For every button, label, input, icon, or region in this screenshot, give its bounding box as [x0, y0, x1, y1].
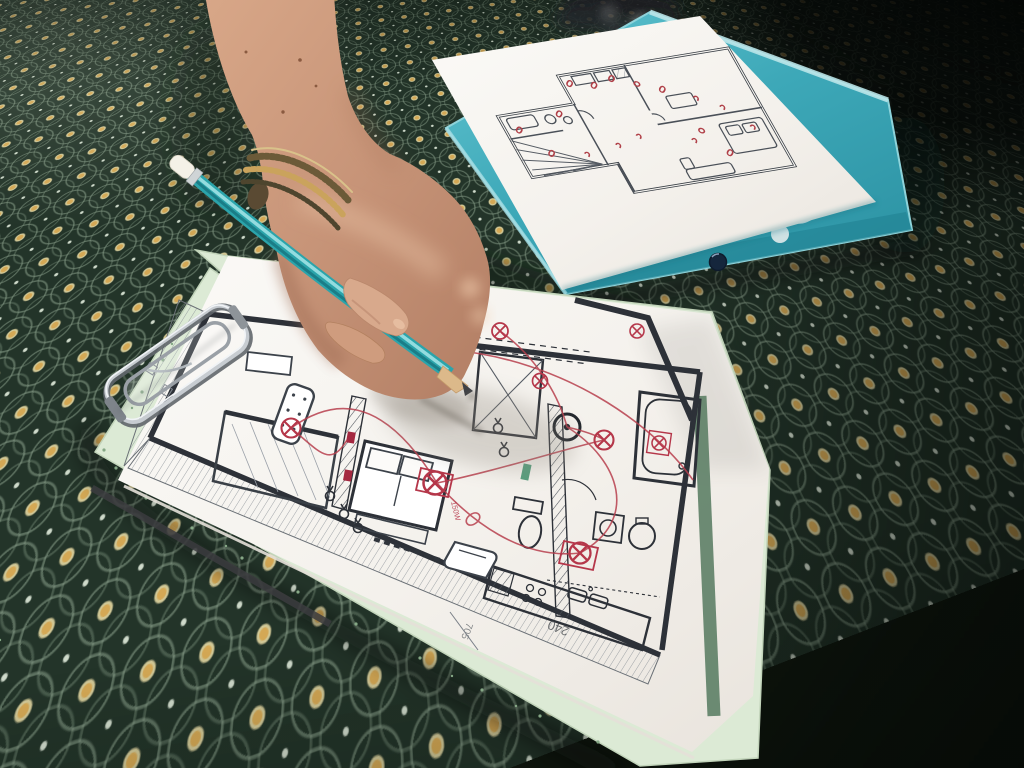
photo-scene: 240 705 150W — [0, 0, 1024, 768]
scene-objects: 240 705 150W — [0, 0, 1024, 768]
